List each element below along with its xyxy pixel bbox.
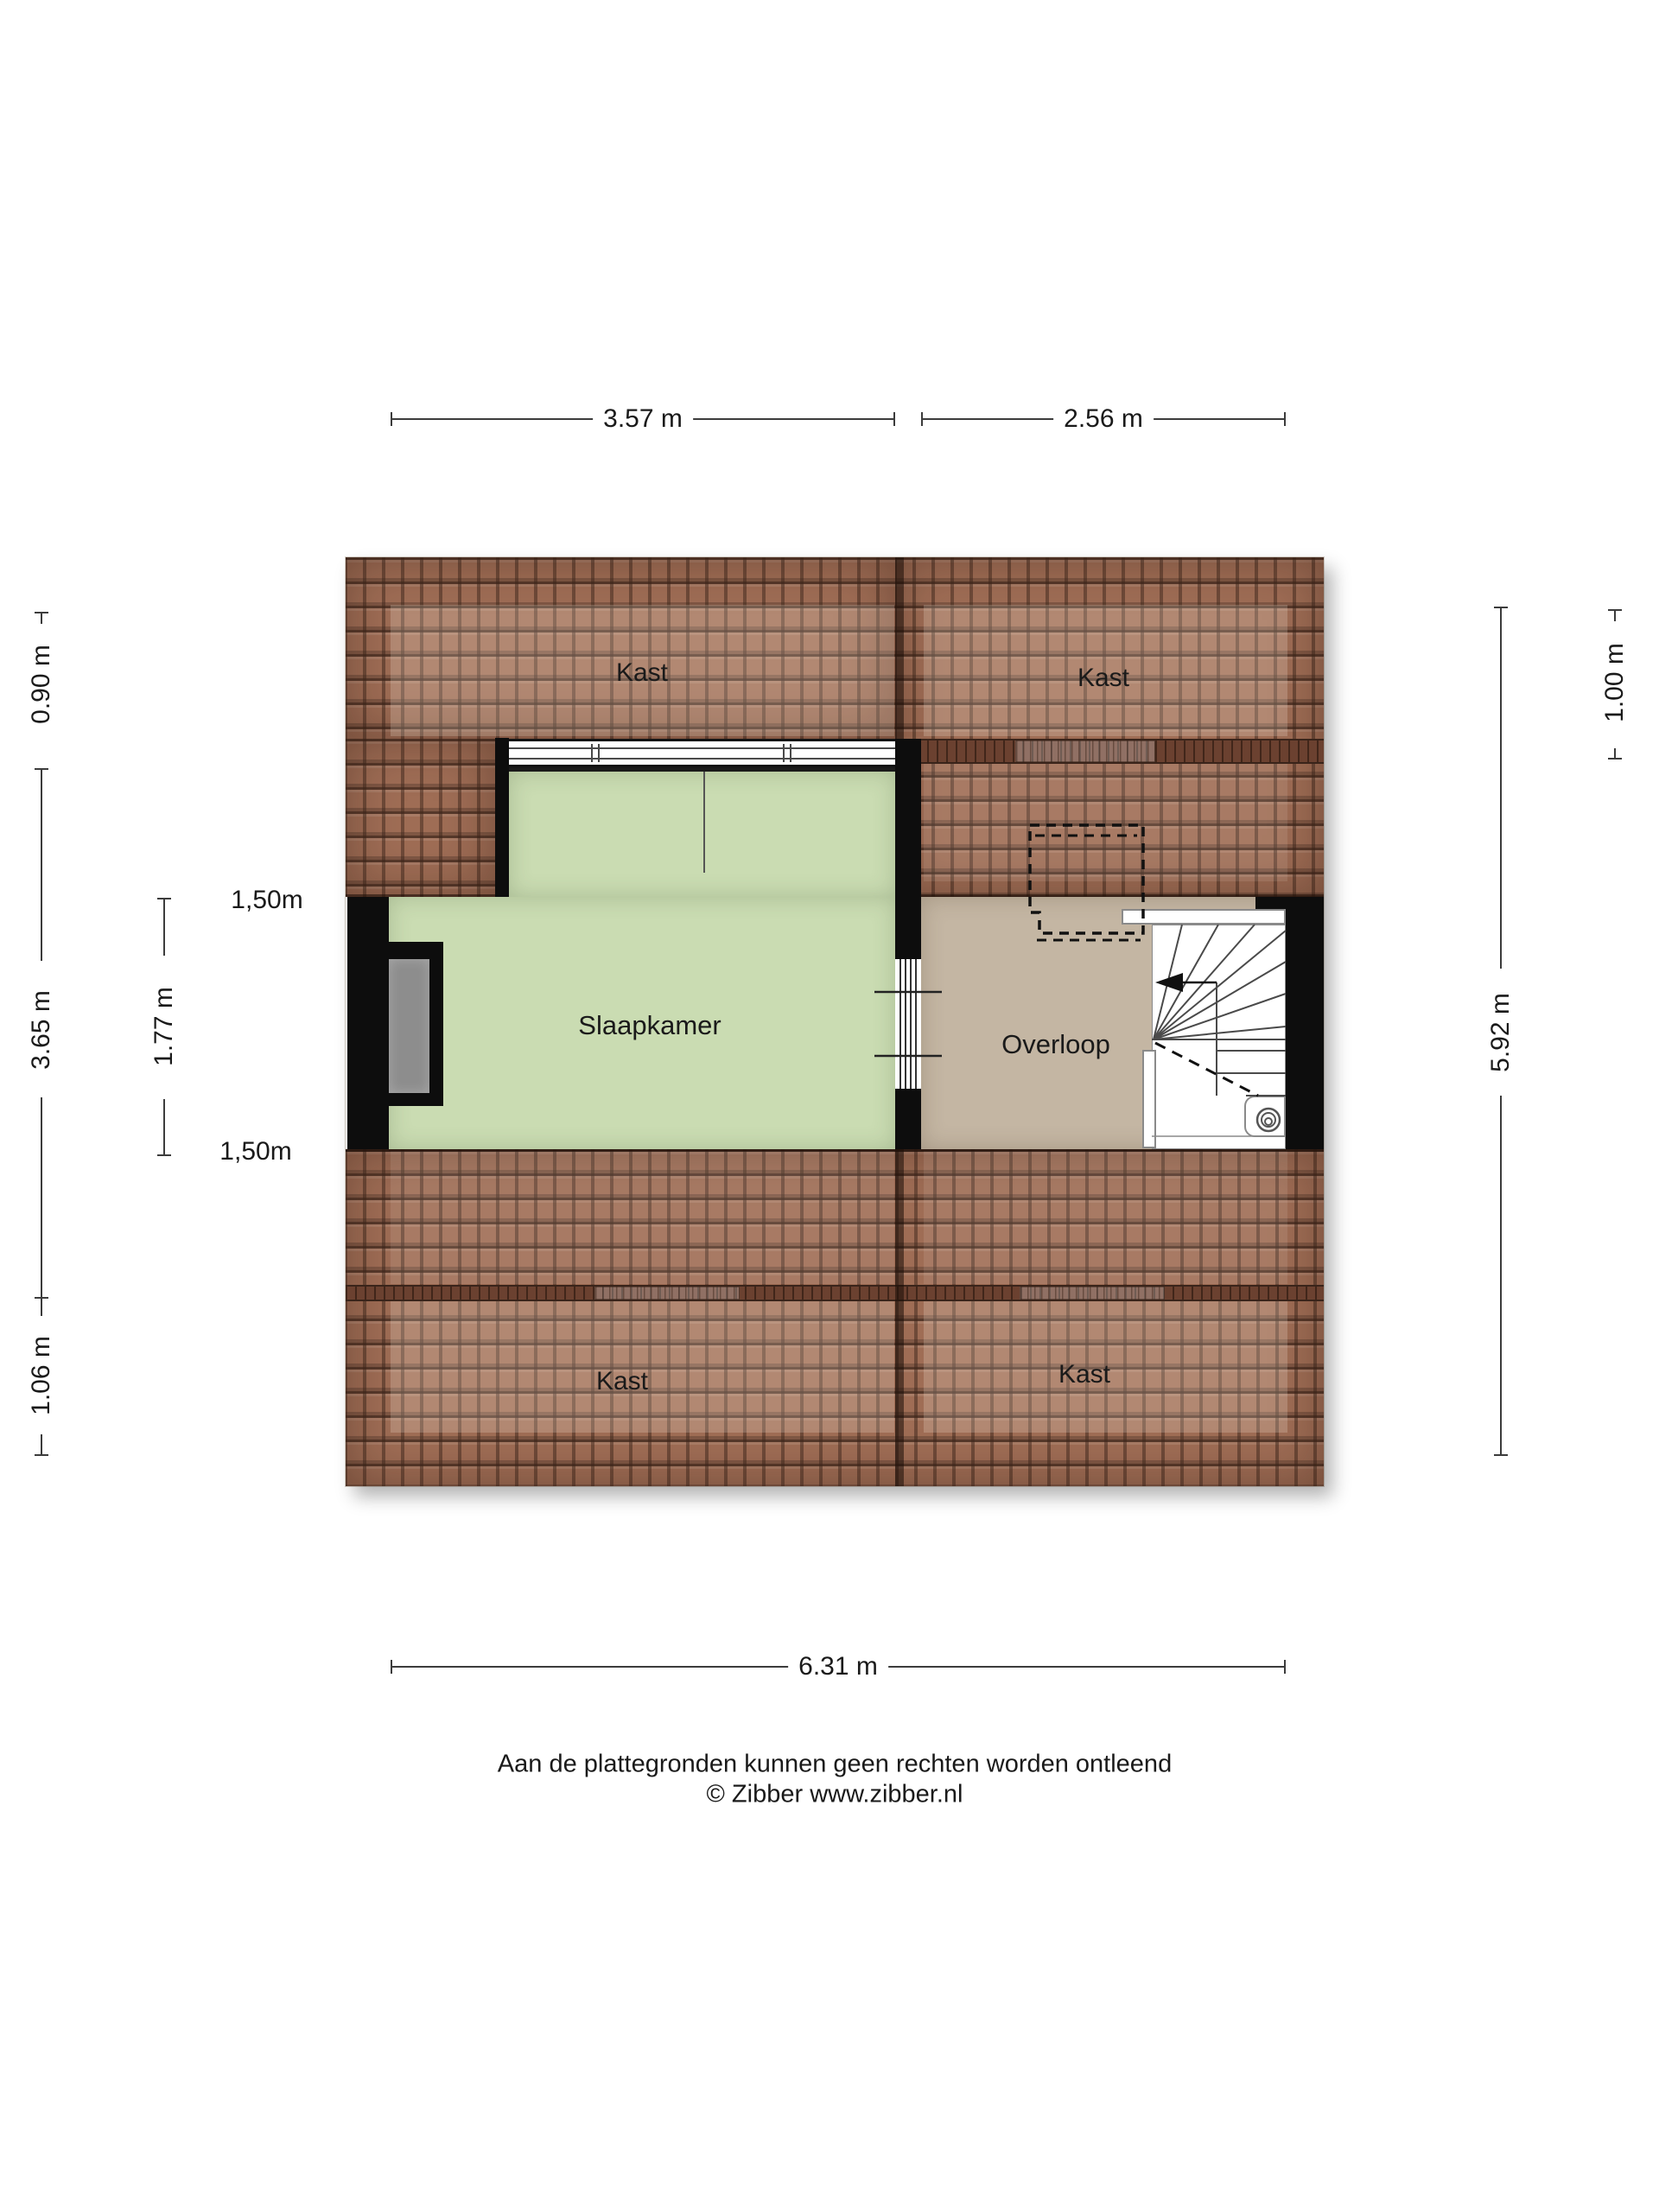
disclaimer-text: Aan de plattegronden kunnen geen rechten…: [498, 1751, 1172, 1779]
dimension-label: 1.77 m: [149, 982, 179, 1071]
bedroom-label: Slaapkamer: [578, 1010, 721, 1041]
dimension-label: 3.57 m: [593, 404, 693, 434]
dimension-top-right: 2.56 m: [921, 405, 1286, 433]
closet-label-top-left: Kast: [616, 658, 668, 688]
hatch-dashed-outline: [1030, 825, 1143, 933]
landing-label: Overloop: [1001, 1029, 1110, 1060]
closet-label-top-right: Kast: [1077, 664, 1129, 693]
closet-label-bottom-left: Kast: [596, 1367, 648, 1396]
copyright-text: © Zibber www.zibber.nl: [707, 1781, 963, 1809]
floorplan-page: 3.57 m 2.56 m 6.31 m 0.90 m 3.65 m 1.06 …: [0, 0, 1659, 2212]
dimension-label: 1.06 m: [27, 1331, 56, 1421]
dimension-label: 5.92 m: [1486, 988, 1516, 1077]
dimension-label: 1.00 m: [1600, 638, 1630, 728]
dimension-label: 0.90 m: [27, 639, 56, 729]
dimension-label: 2.56 m: [1053, 404, 1154, 434]
floorplan-image: Kast Kast Slaapkamer Overloop Kast Kast: [346, 557, 1324, 1486]
dimension-label: 6.31 m: [788, 1652, 888, 1681]
headroom-label-bottom: 1,50m: [219, 1137, 291, 1166]
dimension-top-left: 3.57 m: [391, 405, 895, 433]
headroom-label-top: 1,50m: [231, 886, 302, 915]
plan-linework: [346, 557, 1324, 1486]
closet-label-bottom-right: Kast: [1058, 1360, 1110, 1389]
dimension-label: 3.65 m: [27, 985, 56, 1075]
dimension-bottom: 6.31 m: [391, 1653, 1286, 1681]
